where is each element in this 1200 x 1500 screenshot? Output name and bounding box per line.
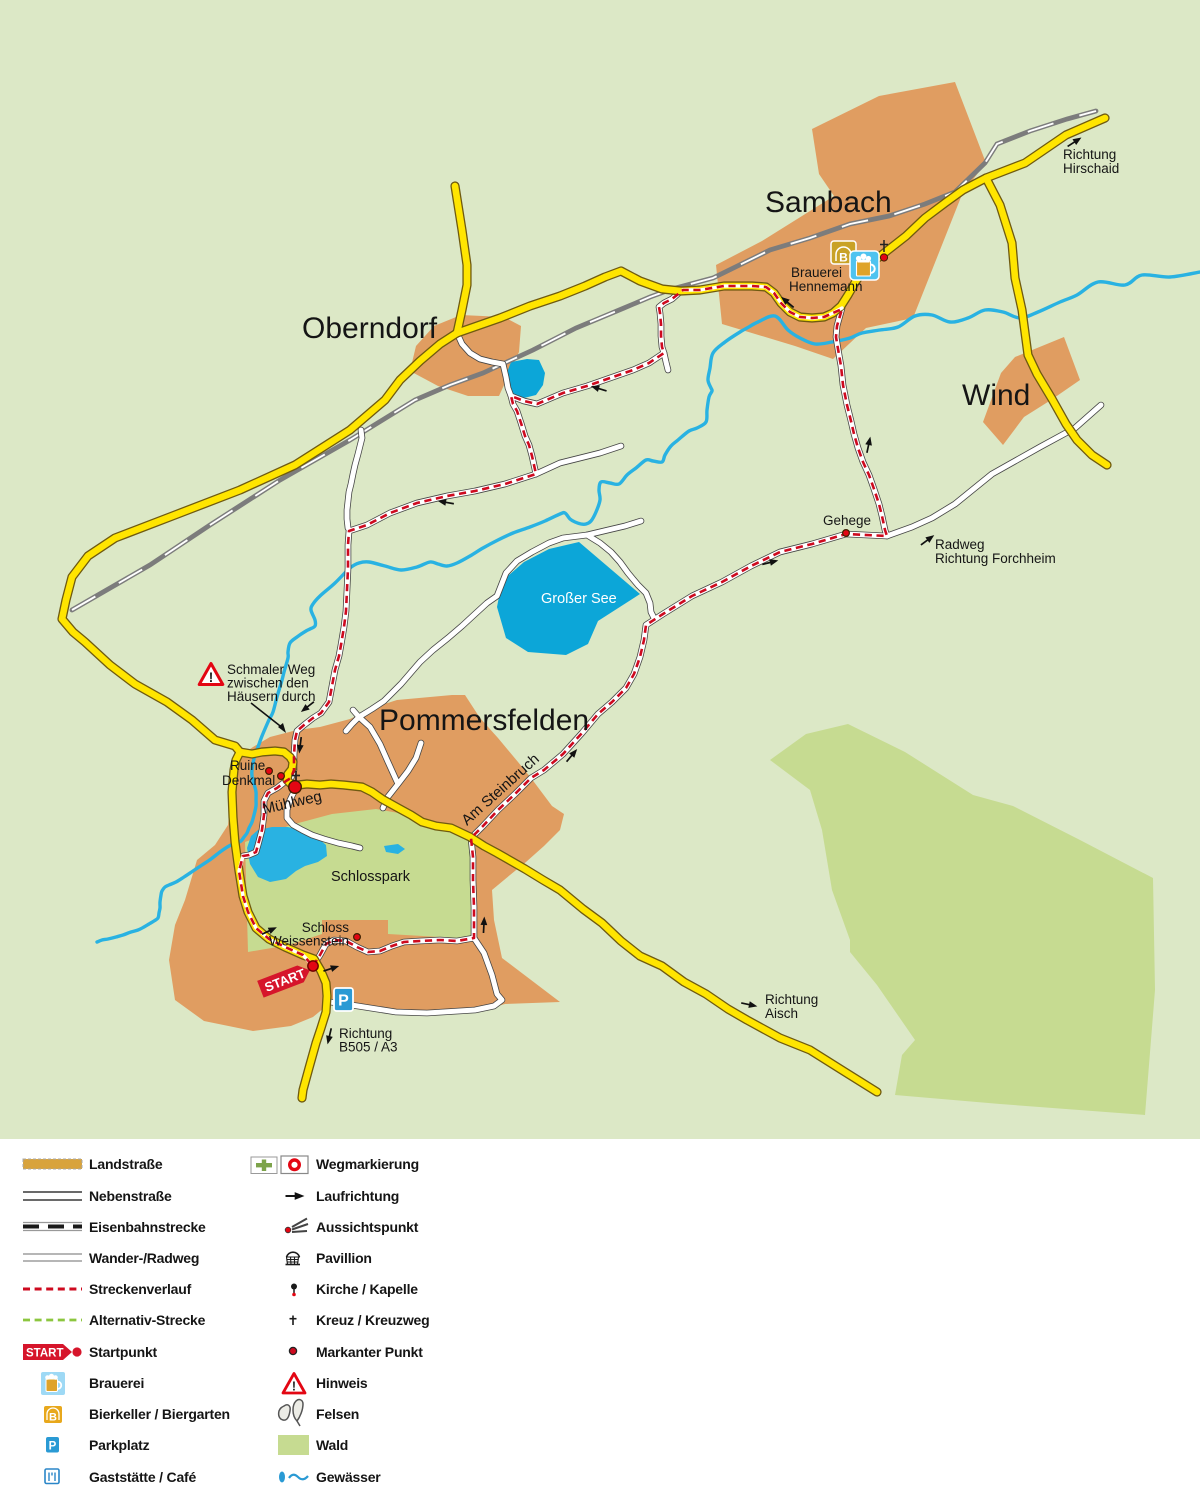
svg-text:Gewässer: Gewässer <box>316 1469 381 1485</box>
svg-text:Hirschaid: Hirschaid <box>1063 161 1119 176</box>
svg-text:Parkplatz: Parkplatz <box>89 1437 150 1453</box>
svg-text:Aisch: Aisch <box>765 1006 798 1021</box>
svg-text:Aussichtspunkt: Aussichtspunkt <box>316 1219 419 1235</box>
svg-text:!: ! <box>209 670 214 685</box>
svg-text:Oberndorf: Oberndorf <box>302 312 438 345</box>
svg-text:Pommersfelden: Pommersfelden <box>379 704 589 737</box>
svg-text:Richtung: Richtung <box>1063 147 1116 162</box>
svg-text:Wander-/Radweg: Wander-/Radweg <box>89 1250 199 1266</box>
svg-text:B: B <box>49 1412 57 1424</box>
svg-text:Brauerei: Brauerei <box>791 265 842 280</box>
svg-text:Landstraße: Landstraße <box>89 1156 163 1172</box>
svg-text:Großer See: Großer See <box>541 591 617 607</box>
svg-text:Schlosspark: Schlosspark <box>331 869 411 885</box>
svg-text:Kirche / Kapelle: Kirche / Kapelle <box>316 1281 418 1297</box>
svg-text:Laufrichtung: Laufrichtung <box>316 1188 399 1204</box>
svg-text:Nebenstraße: Nebenstraße <box>89 1188 172 1204</box>
svg-text:Streckenverlauf: Streckenverlauf <box>89 1281 192 1297</box>
svg-text:Alternativ-Strecke: Alternativ-Strecke <box>89 1312 206 1328</box>
svg-text:Gehege: Gehege <box>823 513 871 528</box>
svg-text:Hinweis: Hinweis <box>316 1375 368 1391</box>
svg-text:Ruine: Ruine <box>230 758 265 773</box>
svg-text:!: ! <box>292 1380 296 1394</box>
svg-text:Wegmarkierung: Wegmarkierung <box>316 1156 419 1172</box>
svg-text:Richtung: Richtung <box>765 992 818 1007</box>
svg-text:Denkmal: Denkmal <box>222 773 275 788</box>
svg-text:B505 / A3: B505 / A3 <box>339 1040 398 1055</box>
svg-text:Radweg: Radweg <box>935 537 985 552</box>
svg-text:Richtung Forchheim: Richtung Forchheim <box>935 551 1056 566</box>
svg-text:Hennemann: Hennemann <box>789 279 863 294</box>
svg-text:START: START <box>26 1348 63 1360</box>
svg-text:Wind: Wind <box>962 379 1030 412</box>
svg-text:Weissenstein: Weissenstein <box>269 934 349 949</box>
svg-text:Felsen: Felsen <box>316 1406 359 1422</box>
svg-text:Wald: Wald <box>316 1437 348 1453</box>
svg-text:Startpunkt: Startpunkt <box>89 1344 158 1360</box>
svg-text:B: B <box>839 251 848 265</box>
svg-text:Markanter Punkt: Markanter Punkt <box>316 1344 423 1360</box>
svg-text:Bierkeller / Biergarten: Bierkeller / Biergarten <box>89 1406 230 1422</box>
svg-text:P: P <box>338 993 349 1010</box>
svg-text:Kreuz / Kreuzweg: Kreuz / Kreuzweg <box>316 1312 430 1328</box>
svg-text:Brauerei: Brauerei <box>89 1375 144 1391</box>
svg-text:P: P <box>49 1441 57 1453</box>
svg-text:Eisenbahnstrecke: Eisenbahnstrecke <box>89 1219 206 1235</box>
svg-text:Pavillion: Pavillion <box>316 1250 372 1266</box>
svg-text:Gaststätte / Café: Gaststätte / Café <box>89 1469 196 1485</box>
svg-text:Häusern durch: Häusern durch <box>227 689 316 704</box>
svg-text:Sambach: Sambach <box>765 186 892 219</box>
